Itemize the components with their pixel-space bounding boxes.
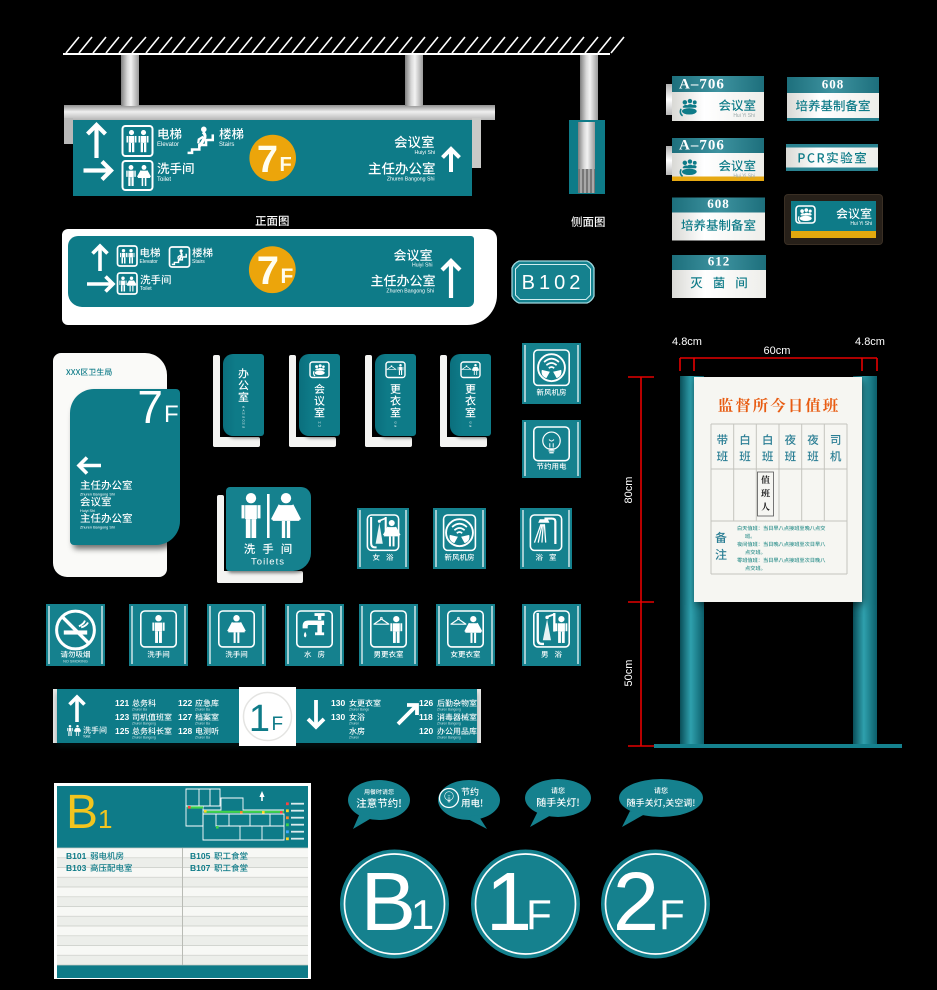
svg-text:612: 612 [708, 254, 731, 269]
svg-text:F: F [659, 891, 685, 938]
svg-text:1: 1 [98, 804, 112, 834]
svg-text:Zhuren Bangong: Zhuren Bangong [437, 708, 461, 712]
svg-text:1: 1 [411, 891, 434, 938]
svg-text:Stairs: Stairs [219, 142, 234, 148]
svg-text:U: U [318, 424, 320, 428]
svg-text:B103: B103 [66, 863, 87, 873]
svg-text:Zhuren Bangong Shi: Zhuren Bangong Shi [387, 177, 435, 183]
svg-text:123: 123 [115, 712, 129, 722]
svg-text:E: E [394, 424, 396, 428]
svg-text:A–706: A–706 [679, 77, 725, 93]
svg-text:60cm: 60cm [764, 345, 791, 357]
svg-text:1: 1 [249, 698, 270, 740]
svg-text:Huiyi Shi: Huiyi Shi [415, 150, 435, 156]
svg-text:E: E [469, 424, 471, 428]
svg-text:Elevator: Elevator [140, 259, 159, 265]
svg-text:B102: B102 [522, 272, 585, 294]
svg-text:B: B [361, 855, 416, 948]
svg-text:608: 608 [822, 77, 845, 92]
svg-text:7: 7 [137, 381, 163, 433]
svg-text:7: 7 [257, 249, 279, 293]
svg-text:118: 118 [419, 712, 433, 722]
svg-text:Elevator: Elevator [157, 142, 179, 148]
svg-text:F: F [280, 154, 292, 176]
svg-text:B107: B107 [190, 863, 211, 873]
svg-text:B: B [66, 786, 98, 839]
svg-text:608: 608 [707, 196, 730, 211]
svg-text:A–706: A–706 [679, 138, 725, 154]
svg-text:130: 130 [331, 712, 345, 722]
svg-text:Hui Yi Shi: Hui Yi Shi [733, 173, 755, 179]
svg-text:Toilet: Toilet [83, 735, 91, 739]
svg-text:Zhuren: Zhuren [349, 736, 359, 740]
svg-text:Zhuren Bango: Zhuren Bango [349, 708, 369, 712]
svg-text:50cm: 50cm [623, 660, 635, 687]
svg-text:F: F [164, 401, 179, 428]
svg-text:Zhuren: Zhuren [349, 722, 359, 726]
svg-text:Zhuren Ba: Zhuren Ba [195, 736, 210, 740]
svg-text:127: 127 [178, 712, 192, 722]
svg-text:126: 126 [419, 698, 433, 708]
svg-text:Toilet: Toilet [140, 286, 152, 292]
svg-text:Huiyi Shi: Huiyi Shi [80, 509, 95, 513]
svg-text:Zhuren Ba: Zhuren Ba [132, 708, 147, 712]
svg-text:7: 7 [257, 139, 278, 181]
svg-text:Hui Yi Shi: Hui Yi Shi [850, 221, 872, 227]
svg-text:B105: B105 [190, 851, 211, 861]
svg-text:Zhuren Bangong: Zhuren Bangong [132, 722, 156, 726]
svg-text:Toilet: Toilet [157, 177, 171, 183]
svg-text:122: 122 [178, 698, 192, 708]
svg-text:120: 120 [419, 726, 433, 736]
svg-text:Zhuren Ba: Zhuren Ba [195, 722, 210, 726]
svg-text:121: 121 [115, 698, 129, 708]
svg-text:Zhuren Bangong Shi: Zhuren Bangong Shi [80, 526, 115, 530]
svg-text:Zhuren Bangong: Zhuren Bangong [437, 736, 461, 740]
svg-text:128: 128 [178, 726, 192, 736]
svg-text:Stairs: Stairs [192, 259, 205, 265]
svg-text:Zhuren Bangong Shi: Zhuren Bangong Shi [80, 493, 115, 497]
svg-text:Zhuren Bangong: Zhuren Bangong [437, 722, 461, 726]
svg-text:4.8cm: 4.8cm [672, 336, 702, 348]
svg-text:125: 125 [115, 726, 129, 736]
svg-text:F: F [526, 891, 552, 938]
svg-text:G: G [242, 425, 245, 429]
svg-text:4.8cm: 4.8cm [855, 336, 885, 348]
svg-text:80cm: 80cm [623, 477, 635, 504]
svg-text:B101: B101 [66, 851, 87, 861]
svg-text:2: 2 [613, 855, 659, 948]
svg-text:Hui Yi Shi: Hui Yi Shi [733, 113, 755, 119]
svg-text:Zhuren Ba: Zhuren Ba [195, 708, 210, 712]
svg-text:Zhuren Bangong Shi: Zhuren Bangong Shi [386, 289, 434, 295]
svg-text:1: 1 [486, 855, 532, 948]
svg-text:Toilets: Toilets [251, 557, 285, 568]
svg-text:130: 130 [331, 698, 345, 708]
svg-text:F: F [272, 714, 284, 735]
svg-text:Huiyi Shi: Huiyi Shi [412, 263, 432, 269]
svg-text:NO SMOKING: NO SMOKING [63, 660, 88, 664]
svg-text:Zhuren Bangong: Zhuren Bangong [132, 736, 156, 740]
svg-text:F: F [281, 265, 294, 288]
